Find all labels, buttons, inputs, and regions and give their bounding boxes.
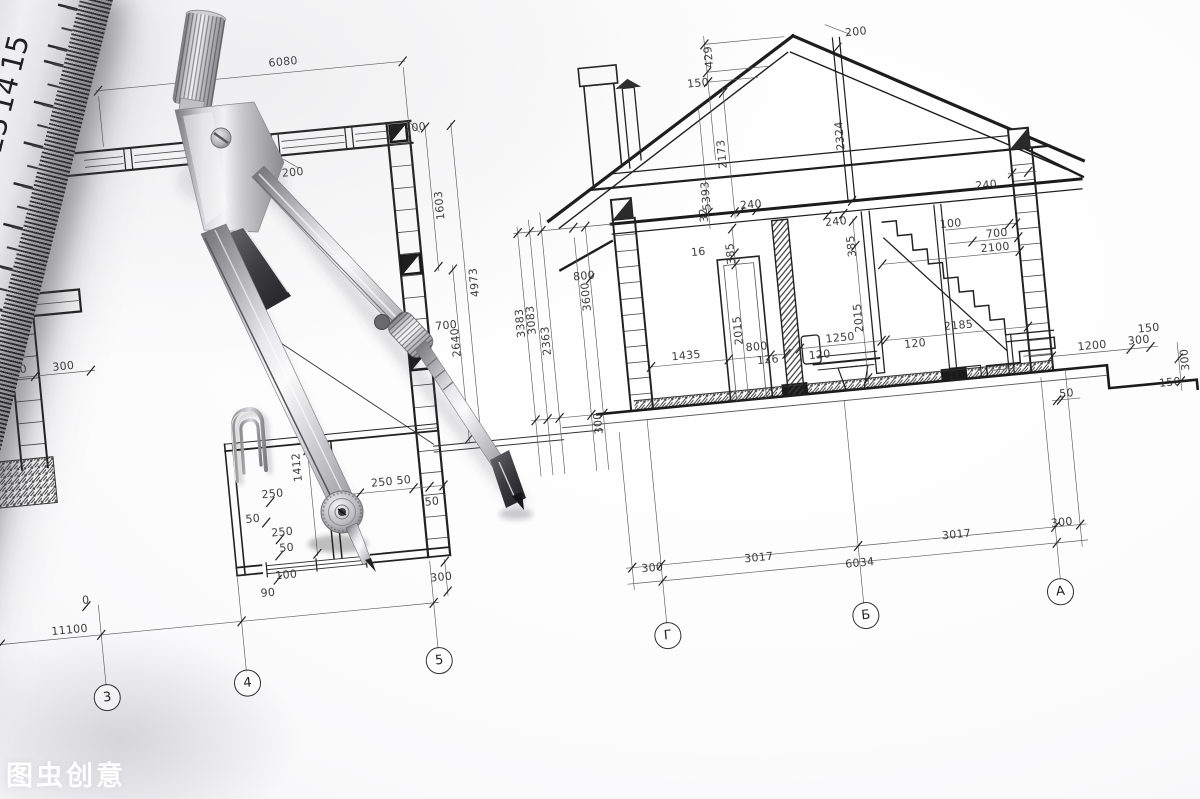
- watermark-tuchong: 图虫创意: [6, 754, 126, 793]
- photo-of-blueprints: 6080200200160349737002640391412250502505…: [0, 0, 1200, 799]
- drafting-tools-layer: [0, 0, 1200, 799]
- compass-beam-screw: [375, 315, 390, 330]
